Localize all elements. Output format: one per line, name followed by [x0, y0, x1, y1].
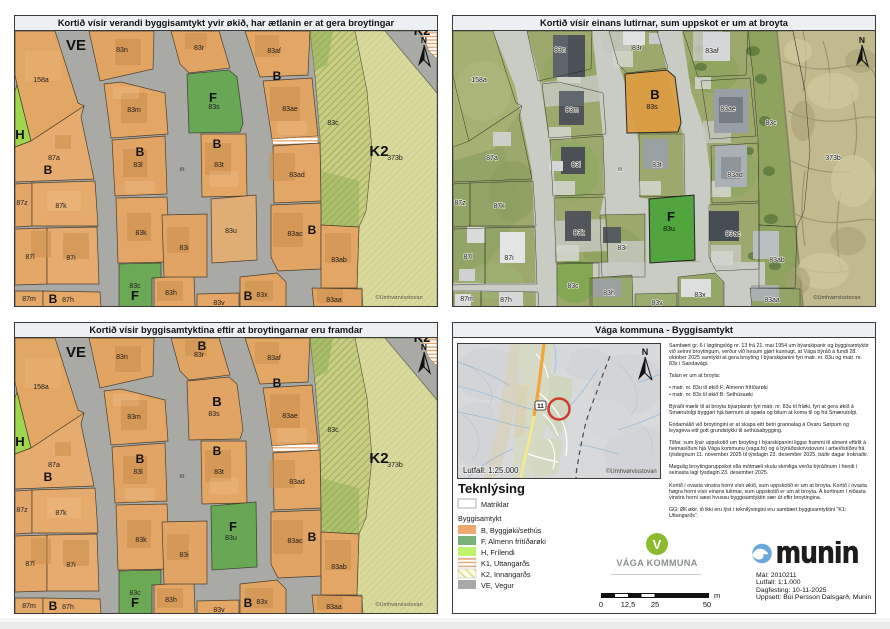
svg-text:K1, Uttangarðs: K1, Uttangarðs: [481, 559, 530, 568]
svg-text:83ad: 83ad: [727, 172, 743, 179]
svg-text:H, Frílendi: H, Frílendi: [481, 548, 515, 557]
svg-text:F: F: [229, 519, 237, 534]
svg-text:F: F: [667, 209, 675, 224]
svg-text:Lutfall: 1:25.000: Lutfall: 1:25.000: [463, 466, 519, 475]
svg-text:F: F: [131, 288, 139, 303]
svg-text:158a: 158a: [471, 77, 487, 84]
svg-text:83u: 83u: [663, 226, 675, 233]
svg-text:V: V: [653, 537, 662, 552]
svg-text:83u: 83u: [225, 228, 237, 235]
svg-text:83ab: 83ab: [769, 257, 785, 264]
svg-text:83c: 83c: [567, 283, 579, 290]
svg-text:83v: 83v: [651, 300, 663, 306]
svg-text:373b: 373b: [825, 155, 841, 162]
svg-text:Matriklar: Matriklar: [481, 500, 510, 509]
svg-text:83u: 83u: [225, 535, 237, 542]
svg-text:87k: 87k: [493, 203, 505, 210]
svg-text:87i: 87i: [504, 255, 514, 262]
svg-text:83m: 83m: [565, 107, 579, 114]
svg-text:87m: 87m: [460, 296, 474, 303]
svg-text:83af: 83af: [705, 48, 719, 55]
svg-text:83s: 83s: [208, 104, 220, 111]
svg-text:87l: 87l: [463, 254, 473, 261]
svg-text:B: B: [198, 339, 207, 353]
svg-text:F: F: [131, 595, 139, 610]
svg-text:©Umhvørvisstovan: ©Umhvørvisstovan: [606, 468, 657, 475]
svg-text:83x: 83x: [694, 292, 706, 299]
svg-text:83t: 83t: [652, 162, 662, 169]
svg-text:©Umhvørvisstovan: ©Umhvørvisstovan: [813, 294, 860, 301]
svg-text:m: m: [714, 591, 720, 600]
svg-text:83c: 83c: [765, 120, 777, 127]
svg-text:B: B: [650, 87, 659, 102]
svg-text:0: 0: [599, 600, 603, 609]
svg-text:83s: 83s: [208, 411, 220, 418]
svg-text:50: 50: [703, 600, 711, 609]
svg-text:25: 25: [651, 600, 659, 609]
svg-text:m: m: [618, 167, 623, 173]
svg-text:83s: 83s: [646, 104, 658, 111]
svg-text:83r: 83r: [632, 45, 643, 52]
svg-text:K2, Innangarðs: K2, Innangarðs: [481, 570, 531, 579]
svg-text:munin: munin: [776, 541, 859, 568]
svg-text:83aa: 83aa: [764, 297, 780, 304]
svg-text:F: F: [209, 90, 217, 105]
svg-text:N: N: [859, 35, 865, 45]
svg-text:87h: 87h: [500, 297, 512, 304]
svg-text:83ac: 83ac: [725, 231, 741, 238]
svg-text:N: N: [642, 347, 649, 357]
svg-text:83l: 83l: [571, 162, 581, 169]
svg-text:B: B: [212, 394, 221, 409]
svg-text:83i: 83i: [617, 245, 627, 252]
svg-text:83n: 83n: [554, 47, 566, 54]
svg-text:83ae: 83ae: [720, 106, 736, 113]
svg-text:F, Almenn frítíðarøki: F, Almenn frítíðarøki: [481, 537, 546, 546]
svg-text:83k: 83k: [573, 230, 585, 237]
svg-text:12,5: 12,5: [621, 600, 636, 609]
svg-text:11: 11: [537, 403, 544, 410]
svg-text:87a: 87a: [486, 155, 498, 162]
svg-text:VE, Vegur: VE, Vegur: [481, 581, 514, 590]
svg-text:VÁGA KOMMUNA: VÁGA KOMMUNA: [616, 557, 697, 568]
svg-text:B, Byggjøki/sethús: B, Byggjøki/sethús: [481, 526, 542, 535]
svg-text:Byggisamtykt: Byggisamtykt: [458, 514, 501, 523]
svg-text:87z: 87z: [454, 200, 466, 207]
svg-text:83h: 83h: [603, 290, 615, 297]
